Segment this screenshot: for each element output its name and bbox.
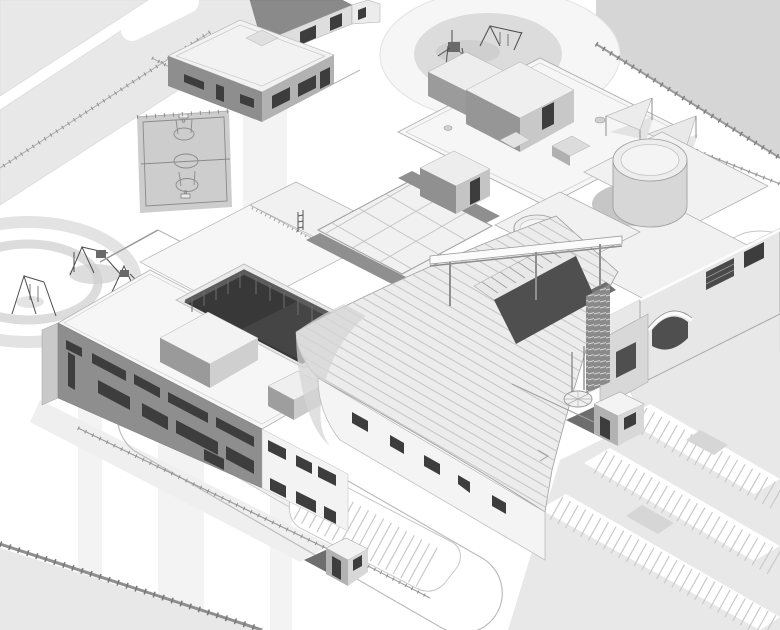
shed-door	[216, 84, 224, 102]
roof-vent	[444, 126, 452, 131]
louver-slats	[586, 284, 610, 394]
equipment-shadow	[69, 264, 121, 284]
roof-vent	[595, 117, 605, 123]
site-render	[0, 0, 780, 630]
west-end-wall	[42, 323, 58, 405]
render-viewport	[0, 0, 780, 630]
backboard	[181, 194, 190, 198]
swing-set	[12, 276, 56, 316]
road-southwest-corner	[0, 548, 258, 630]
basketball-court	[137, 111, 232, 213]
drum-top-inner	[621, 145, 679, 176]
